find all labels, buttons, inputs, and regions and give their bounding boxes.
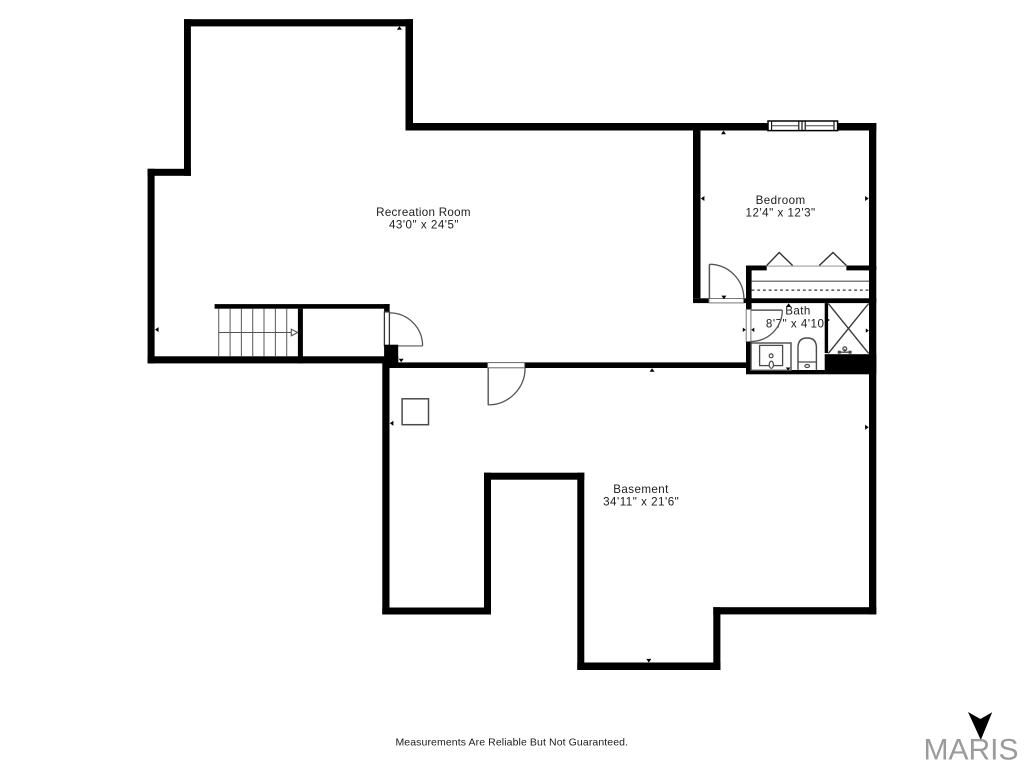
svg-text:12'4" x 12'3": 12'4" x 12'3" <box>746 207 816 220</box>
svg-text:34'11" x 21'6": 34'11" x 21'6" <box>603 495 679 508</box>
svg-text:Bedroom: Bedroom <box>756 194 806 207</box>
svg-text:Recreation Room: Recreation Room <box>376 206 471 219</box>
svg-text:43'0" x 24'5": 43'0" x 24'5" <box>389 218 459 231</box>
svg-text:MARIS: MARIS <box>924 733 1019 766</box>
svg-text:Basement: Basement <box>613 483 669 496</box>
svg-text:Measurements Are Reliable But: Measurements Are Reliable But Not Guaran… <box>395 736 628 748</box>
